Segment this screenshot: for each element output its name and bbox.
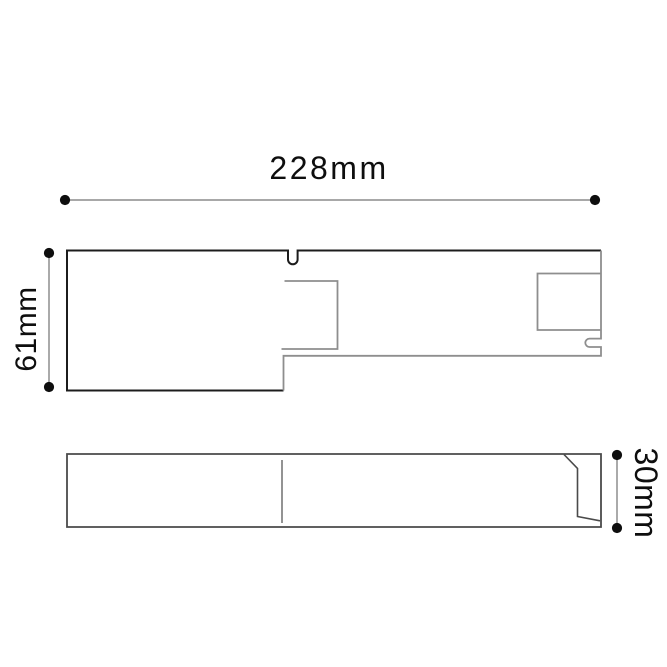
- side-view: [67, 454, 601, 527]
- top-view-outline-dark: [67, 251, 601, 391]
- height-dimension-top-dot: [44, 248, 54, 258]
- top-view-terminal-block-detail: [282, 281, 338, 349]
- depth-dimension-bottom-dot: [612, 523, 622, 533]
- width-dimension: [60, 195, 600, 205]
- height-dimension: [44, 248, 54, 392]
- height-dimension-label: 61mm: [12, 286, 42, 371]
- depth-dimension-top-dot: [612, 450, 622, 460]
- technical-drawing-canvas: [0, 0, 667, 667]
- height-dimension-bottom-dot: [44, 382, 54, 392]
- top-view-outline-gray: [284, 251, 602, 391]
- depth-dimension-label: 30mm: [630, 448, 662, 539]
- top-view: [67, 251, 601, 391]
- side-view-endcap-detail: [564, 455, 600, 521]
- top-view-right-block-detail: [538, 274, 602, 331]
- side-view-outline: [67, 454, 601, 527]
- width-dimension-label: 228mm: [269, 152, 388, 184]
- width-dimension-left-dot: [60, 195, 70, 205]
- dimension-drawing: 228mm 61mm 30mm: [0, 0, 667, 667]
- depth-dimension: [612, 450, 622, 533]
- width-dimension-right-dot: [590, 195, 600, 205]
